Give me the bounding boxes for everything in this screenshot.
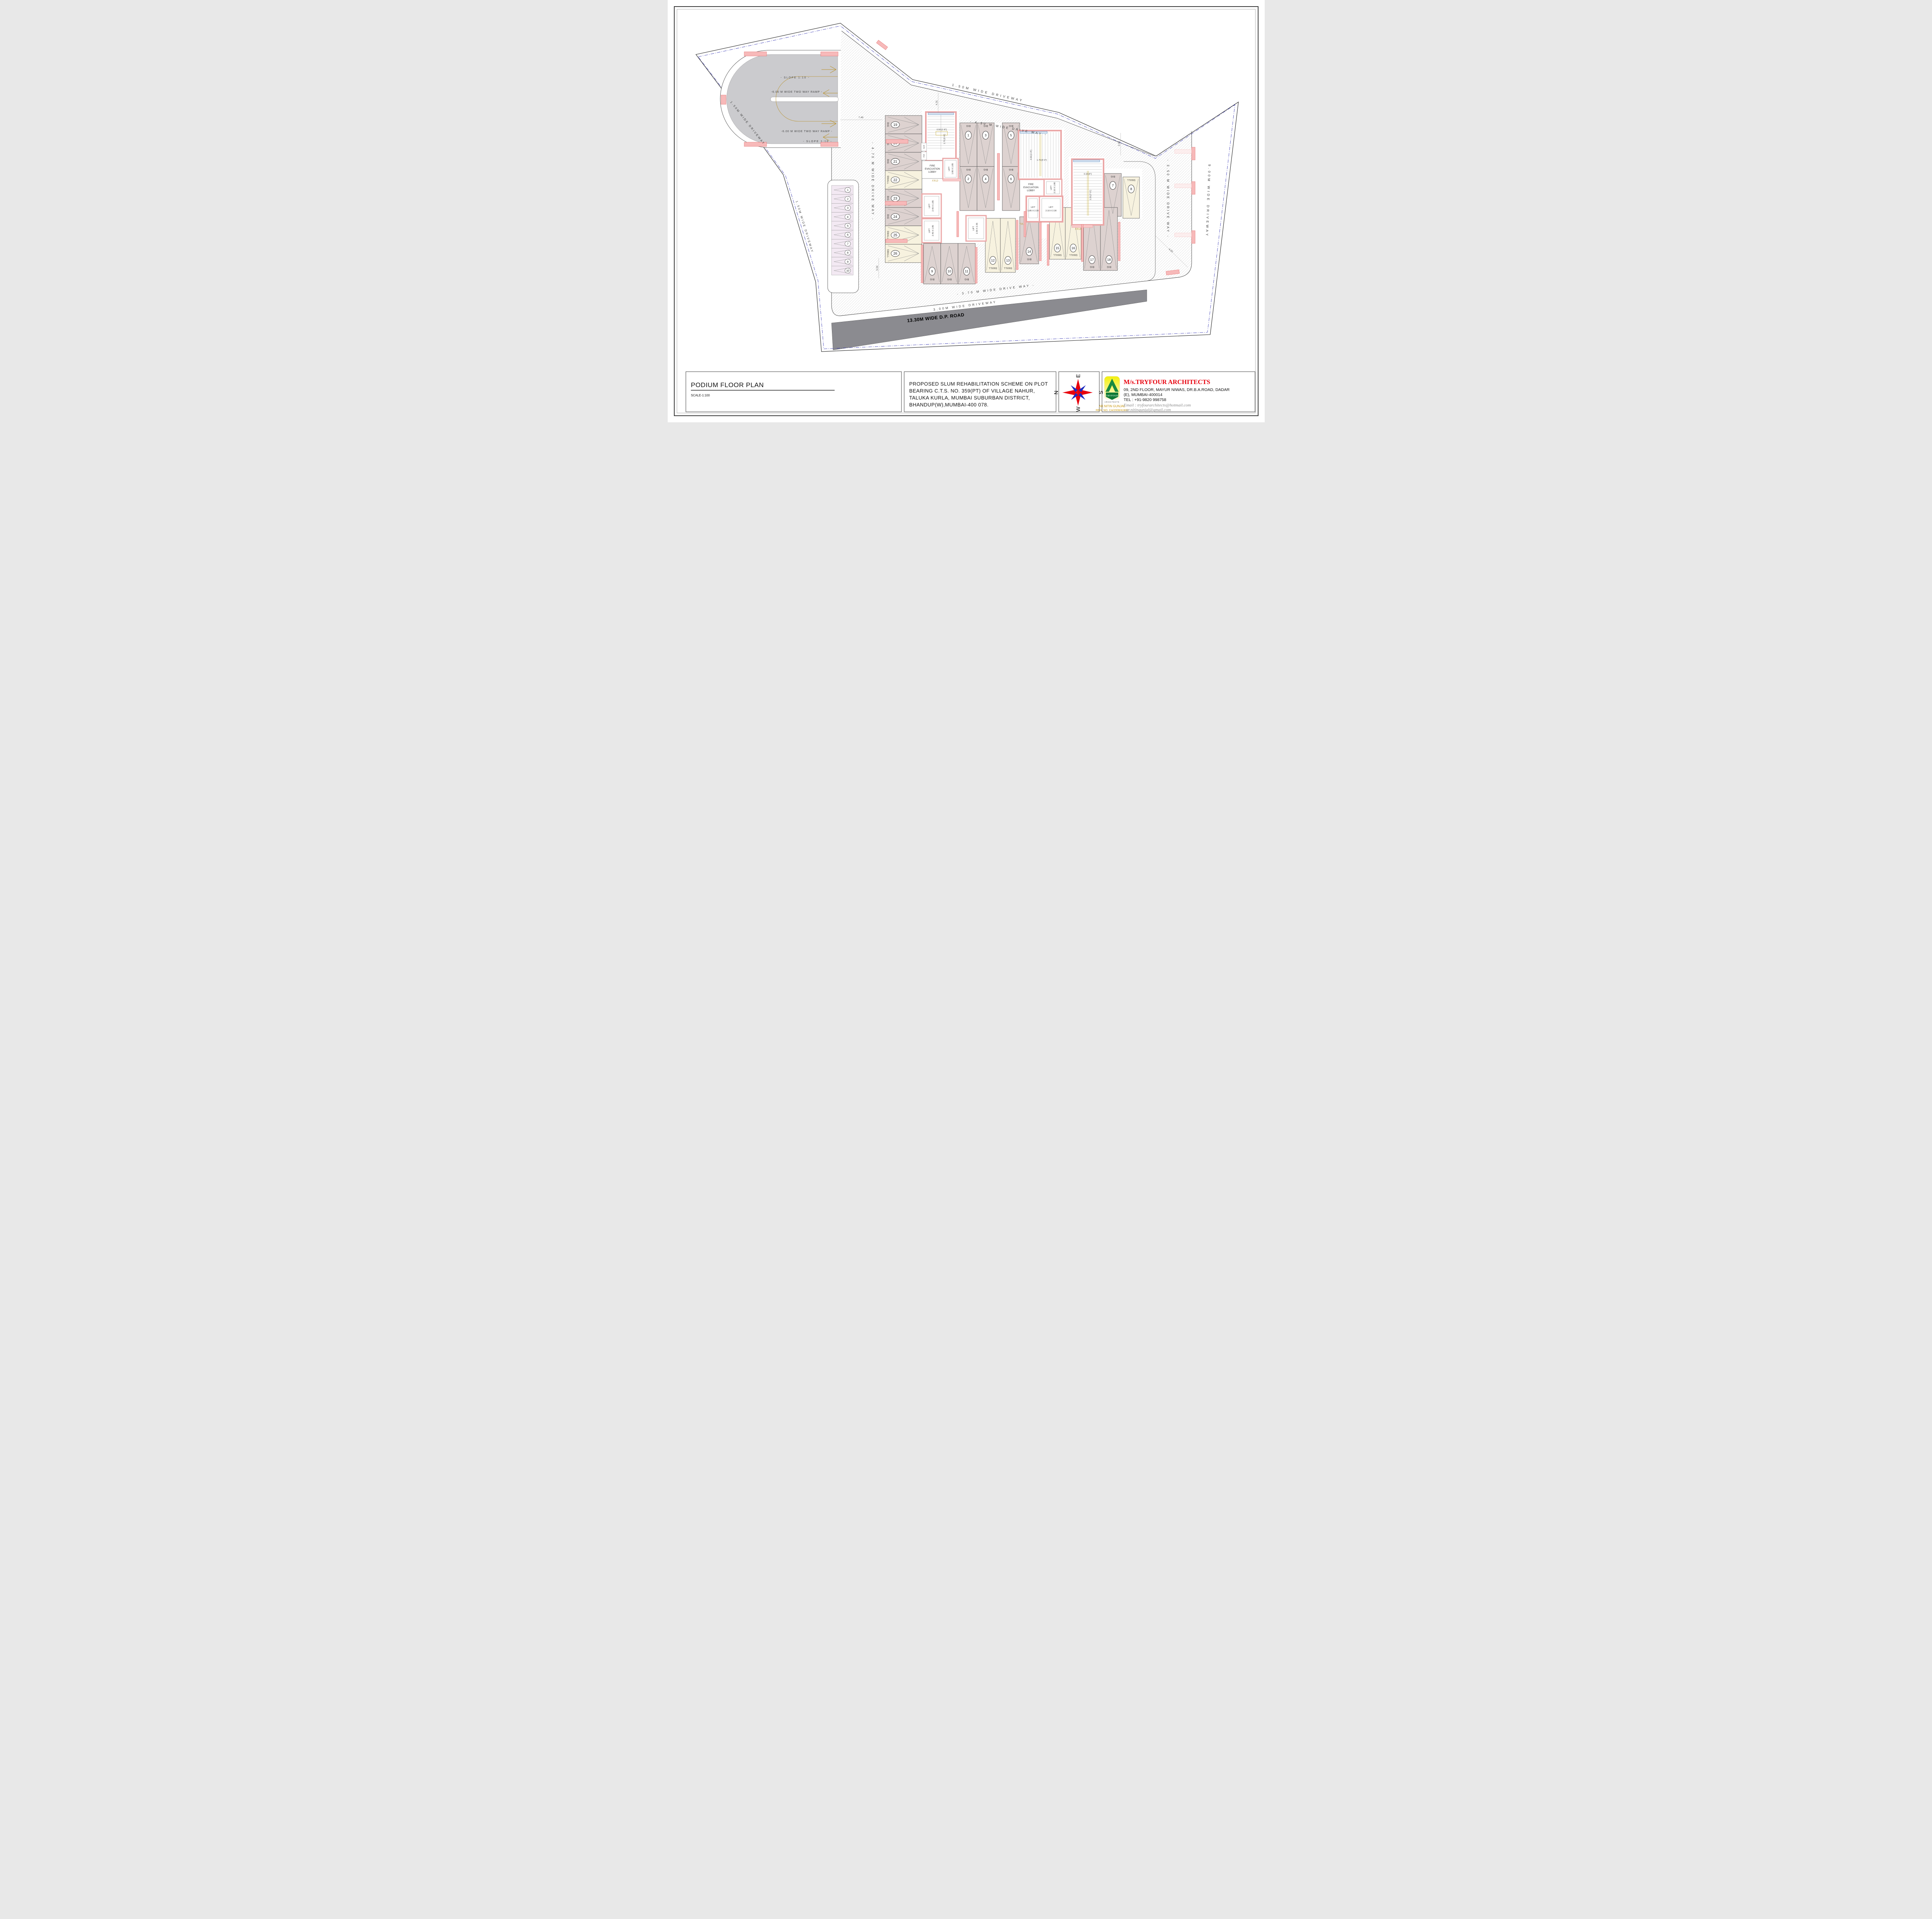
stall-number: 3 [847, 207, 849, 210]
stall-number: 11 [965, 269, 968, 273]
stall-number: 10 [846, 270, 849, 272]
tryfour-logo-icon: TRYFOUR ARCHITECTS [1104, 376, 1120, 403]
lift-label: LIFT [929, 204, 931, 208]
stall-number: 9 [847, 261, 849, 263]
stall-size: BIG [1111, 175, 1115, 177]
stall-size: BIG [1107, 265, 1111, 268]
stall-number: 24 [893, 215, 897, 219]
stall-size: BIG [983, 168, 988, 170]
fire-lobby-label: LOBBY [1027, 189, 1035, 192]
dim-7-49: 7.49 [858, 116, 863, 119]
stall-size: BIG [930, 278, 934, 280]
stair-core-3: 0.10 [4"] 2.25 [7'-5"] F.R.D [1072, 159, 1104, 231]
firm-address-line2: (E), MUMBAI-400014 [1124, 393, 1163, 397]
stall-number: 1 [967, 133, 969, 137]
stall-number: 13 [1006, 258, 1010, 262]
firm-email-1: Email : tryfourarchitects@hotmail.com [1123, 403, 1191, 408]
floor-plan-svg: 13.30M WIDE D.P. ROAD - SLOPE 1:10 - -6.… [668, 0, 1265, 422]
firm-tel: TEL : +91-9820 998758 [1124, 398, 1166, 402]
architect-name: AR.NITIN GUNJAL [1099, 405, 1125, 408]
stall-number: 2 [847, 198, 849, 201]
dim-5-50: 5.50 [876, 265, 879, 270]
stair-dim: 1.75 [5'-9"] [944, 134, 946, 144]
stall-size: BIG [947, 278, 951, 280]
stall-number: 23 [893, 196, 897, 200]
fire-lobby-label: FIRE [1028, 183, 1033, 186]
stall-number: 17 [1090, 258, 1094, 262]
title-bar: PODIUM FLOOR PLAN SCALE-1:100 PROPOSED S… [686, 372, 1255, 412]
dim-4-31: 4.31 [935, 100, 938, 105]
stall-number: 3 [985, 133, 986, 137]
stall-number: 5 [847, 225, 849, 228]
stair-core-1: 0.50 [1'-8"] 1.75 [5'-9"] E.D F.D FIRE E… [921, 112, 961, 182]
stall-size: BIG [886, 214, 888, 219]
ramp-divider [770, 97, 838, 102]
sheet-title: PODIUM FLOOR PLAN [691, 381, 764, 389]
stall-number: 26 [893, 252, 897, 255]
lift-label: LIFT [1049, 206, 1053, 209]
stall-size: BIG [886, 196, 888, 201]
compass-w: W [1075, 406, 1081, 412]
stall-number: 7 [1112, 184, 1114, 187]
logo-subtitle: ARCHITECTS [1104, 401, 1119, 403]
stall-number: 25 [893, 233, 897, 237]
fire-lobby-label: LOBBY [928, 171, 936, 173]
stall-size: BIG [966, 168, 971, 170]
stall-size: SMALL [886, 249, 888, 258]
stall-number: 21 [893, 160, 897, 163]
stall-number: 19 [893, 123, 897, 127]
firm-email-2: : ar.nitingunjal@gmail.com [1124, 408, 1171, 412]
stall-size: BIG [1027, 258, 1031, 260]
title-underline [691, 390, 835, 391]
project-description-line: BEARING C.T.S. NO. 359(PT) OF VILLAGE NA… [909, 388, 1035, 394]
project-description-line: TALUKA KURLA, MUMBAI SUBURBAN DISTRICT, [909, 395, 1030, 401]
project-description-line: PROPOSED SLUM REHABILITATION SCHEME ON P… [909, 381, 1048, 387]
stall-size: SMALL [886, 176, 888, 184]
lift-size: 1.85 X 2.30 [1027, 210, 1039, 212]
stall-number: 12 [991, 258, 995, 262]
project-description-line: BHANDUP(W),MUMBAI-400 078. [909, 402, 988, 408]
dim-3-33: 3.33 [1118, 141, 1121, 146]
stall-size: BIG [1090, 265, 1094, 268]
lift-label: LIFT [948, 167, 951, 171]
stall-size: SMALL [886, 231, 888, 239]
stair-landing [928, 113, 954, 115]
stair-dim: 1.75 [5'-9"] [1037, 159, 1047, 161]
stall-number: 22 [893, 178, 897, 182]
stall-number: 14 [1027, 250, 1031, 253]
compass-e: E [1075, 374, 1081, 377]
stall-number: 4 [847, 216, 849, 219]
frd-label: F.R.D [1075, 228, 1081, 231]
sheet-scale: SCALE-1:100 [691, 394, 710, 397]
firm-name: M/s.TRYFOUR ARCHITECTS [1124, 378, 1210, 386]
fire-lobby-label: FIRE [929, 165, 935, 167]
stall-number: 5 [1010, 133, 1012, 137]
compass-n: N [1053, 391, 1059, 394]
stall-number: 8 [847, 252, 849, 255]
stall-number: 1 [847, 189, 849, 192]
stall-size: BIG [886, 122, 888, 127]
stall-size: BIG [964, 278, 969, 280]
lift-size: 1.80 X 1.85 [952, 163, 954, 175]
driveway-label-470: - 4.70 M WIDE DRIVE WAY - [871, 142, 874, 221]
ramp-slope-label-top: - SLOPE 1:10 - [781, 76, 810, 79]
frd-label: F.R.D [932, 180, 938, 182]
drawing-sheet: 13.30M WIDE D.P. ROAD - SLOPE 1:10 - -6.… [668, 0, 1265, 422]
lift-label: LIFT [973, 226, 975, 231]
stall-number: 2 [967, 177, 969, 181]
stair-dim: 2.25 [7'-5"] [1090, 190, 1092, 200]
lift-size: 2.40 X 1.85 [932, 201, 934, 212]
stall-size: BIG [886, 159, 888, 164]
compass-s: S [1098, 391, 1104, 394]
ramp-label-top: -6.00 M WIDE TWO WAY RAMP - [771, 91, 822, 93]
stall-size: BIG [1009, 168, 1013, 170]
stall-size: SMALL [1003, 267, 1012, 269]
stair-dim: 0.50 [1'-8"] [937, 129, 947, 131]
site-plan: 13.30M WIDE D.P. ROAD - SLOPE 1:10 - -6.… [696, 23, 1238, 352]
stall-number: 6 [1010, 177, 1012, 181]
firm-address-line1: 09, 2ND FLOOR, MAYUR NIWAS, DR.B.A.ROAD,… [1124, 388, 1230, 392]
stair-landing [1073, 160, 1100, 162]
stall-size: SMALL [1069, 253, 1077, 256]
stall-number: 18 [1107, 258, 1111, 262]
lift-size: 2.10 X 1.80 [1054, 182, 1056, 194]
stair-treads [1073, 164, 1102, 220]
stall-number: 16 [1071, 246, 1075, 250]
driveway-label-900: 9.00M WIDE DRIVEWAY [1205, 164, 1211, 238]
stall-number: 15 [1055, 246, 1059, 250]
stall-number: 9 [931, 269, 933, 273]
fd-duct-label: F.D [923, 154, 925, 157]
stall-size: SMALL [1053, 253, 1061, 256]
stall-number: 7 [847, 243, 849, 245]
parking-strip: 1 2 3 4 5 6 7 8 9 10 [828, 180, 859, 293]
driveway-label-350: - 3.50 M WIDE DRIVE WAY - [1166, 160, 1170, 238]
lift-label: LIFT [1050, 185, 1053, 190]
ramp-label-bottom: -6.00 M WIDE TWO WAY RAMP - [781, 130, 832, 133]
lift-label: LIFT [929, 228, 931, 233]
title-panel [686, 372, 901, 412]
stall-size: SMALL [1127, 178, 1135, 181]
stair-dim: 0.10 [4"] [1084, 173, 1092, 175]
lift-size: 2.30 X 2.35 [976, 223, 978, 234]
fire-lobby-label: EVACUATION [925, 168, 940, 170]
ed-duct-label: E.D [923, 145, 925, 148]
stall-number: 4 [985, 177, 986, 181]
stall-number: 10 [947, 269, 951, 273]
lift-size: 2.10 X 2.30 [1045, 210, 1056, 212]
lift-size: 2.40 X 1.85 [932, 225, 934, 236]
logo-title: TRYFOUR [1106, 395, 1118, 397]
stall-size: BIG [966, 124, 971, 127]
lift-label: LIFT [1031, 206, 1035, 209]
stall-size: SMALL [988, 267, 997, 269]
stair-dim: 0.50 [1'-8"] [1030, 150, 1032, 160]
stall-number: 8 [1130, 187, 1132, 191]
fire-lobby-label: EVACUATION [1023, 186, 1038, 189]
stall-number: 6 [847, 234, 849, 236]
